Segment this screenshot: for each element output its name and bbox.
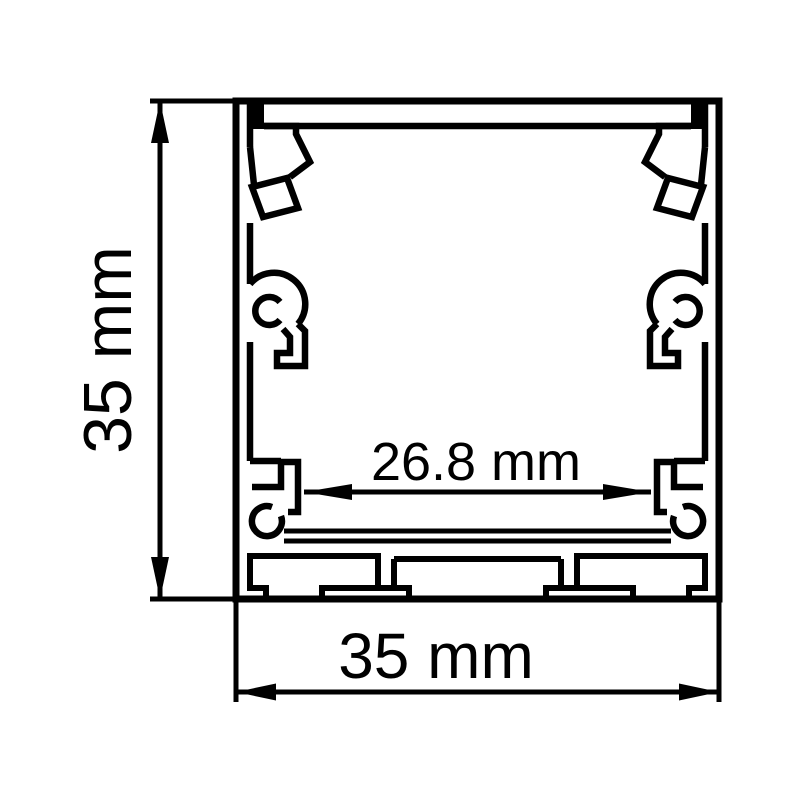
arrowhead-down-icon	[151, 557, 169, 599]
profile-cross-section-svg: 35 mm 35 mm 26.8 mm	[0, 0, 800, 800]
arrowhead-left-icon	[236, 684, 276, 701]
profile-outer-shell	[236, 101, 719, 599]
height-dimension: 35 mm	[70, 101, 236, 599]
cover-hook-tab	[252, 178, 298, 217]
profile-body	[236, 101, 719, 601]
width-dimension: 35 mm	[236, 599, 719, 702]
inner-width-dimension-label: 26.8 mm	[371, 432, 581, 492]
arrowhead-right-icon	[603, 484, 651, 500]
lower-bracket	[252, 462, 298, 512]
cover-hook-arm	[264, 126, 310, 177]
technical-drawing-canvas: 35 mm 35 mm 26.8 mm	[0, 0, 800, 800]
lower-boss-circle	[252, 506, 282, 536]
height-dimension-label: 35 mm	[70, 246, 146, 454]
base-t-slot	[250, 556, 378, 601]
arrowhead-up-icon	[151, 101, 169, 143]
cover-hook-slant	[250, 147, 254, 185]
arrowhead-left-icon	[304, 484, 352, 500]
screw-boss-hook	[277, 324, 305, 366]
width-dimension-label: 35 mm	[338, 620, 534, 692]
top-corner-stub	[247, 101, 264, 129]
arrowhead-right-icon	[679, 684, 719, 701]
inner-width-dimension: 26.8 mm	[304, 432, 651, 500]
profile-right-half-details	[546, 101, 708, 601]
screw-boss-hole	[255, 297, 280, 325]
profile-left-half-details	[247, 101, 409, 601]
